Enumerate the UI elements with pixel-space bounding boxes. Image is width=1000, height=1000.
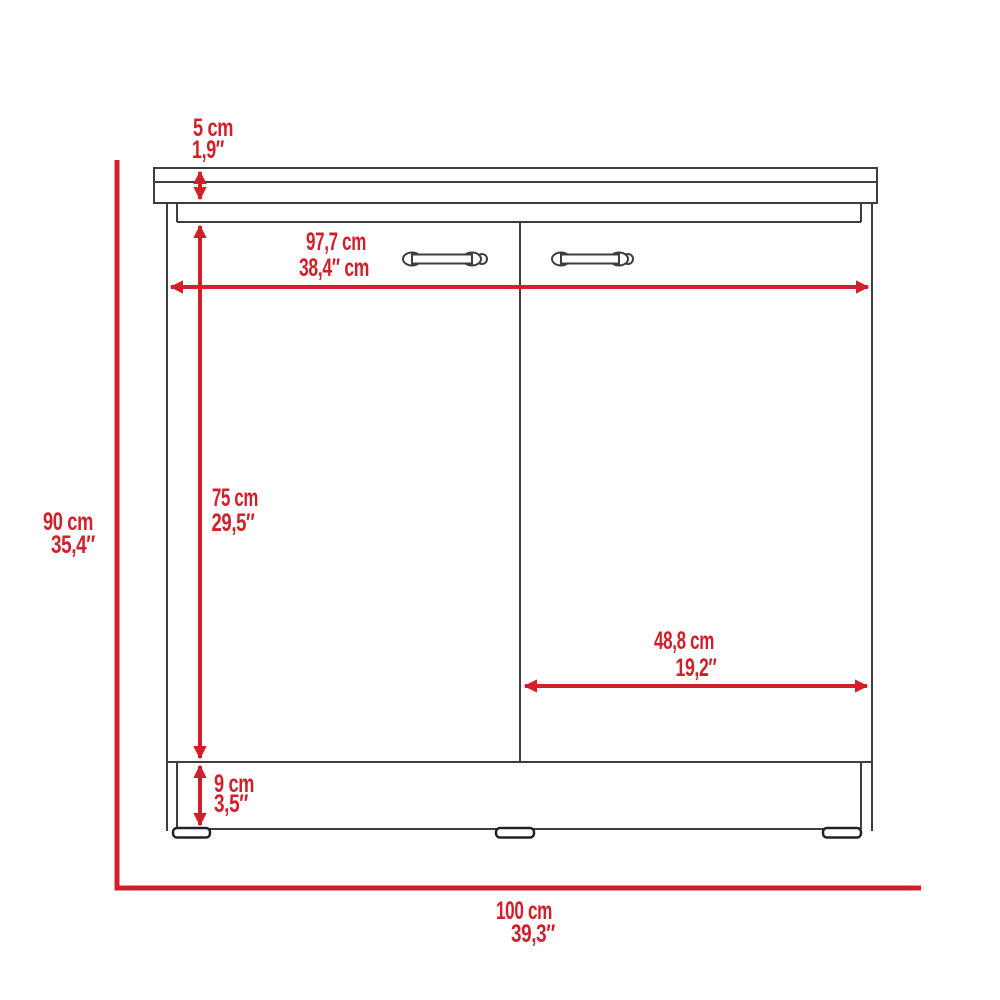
plinth-height-inch-label: 3,5″ (214, 790, 248, 818)
right-foot (823, 828, 861, 838)
right-handle-bar (561, 255, 619, 264)
carcass-width-inch-label: 38,4″ cm (299, 254, 369, 282)
overall-width-inch-label: 39,3″ (511, 920, 555, 948)
door-width-cm-label: 48,8 cm (654, 627, 714, 655)
right-door-handle (552, 253, 633, 266)
left-handle-bar (412, 255, 472, 264)
cabinet-dimension-diagram: 5 cm 1,9″ 97,7 cm 38,4″ cm 90 cm 35,4″ 7… (0, 0, 1000, 1000)
door-width-inch-label: 19,2″ (676, 654, 717, 682)
left-door-handle (403, 253, 487, 266)
door-height-cm-label: 75 cm (212, 484, 258, 512)
dimension-labels: 5 cm 1,9″ 97,7 cm 38,4″ cm 90 cm 35,4″ 7… (43, 114, 717, 948)
door-height-inch-label: 29,5″ (212, 509, 255, 537)
countertop (154, 168, 877, 203)
left-foot (173, 828, 210, 838)
overall-height-inch-label: 35,4″ (51, 531, 95, 559)
countertop-thickness-inch-label: 1,9″ (192, 136, 224, 164)
cabinet-outline (154, 168, 877, 838)
carcass-width-cm-label: 97,7 cm (306, 228, 366, 256)
center-foot (496, 828, 534, 838)
diagram-canvas: 5 cm 1,9″ 97,7 cm 38,4″ cm 90 cm 35,4″ 7… (0, 0, 1000, 1000)
